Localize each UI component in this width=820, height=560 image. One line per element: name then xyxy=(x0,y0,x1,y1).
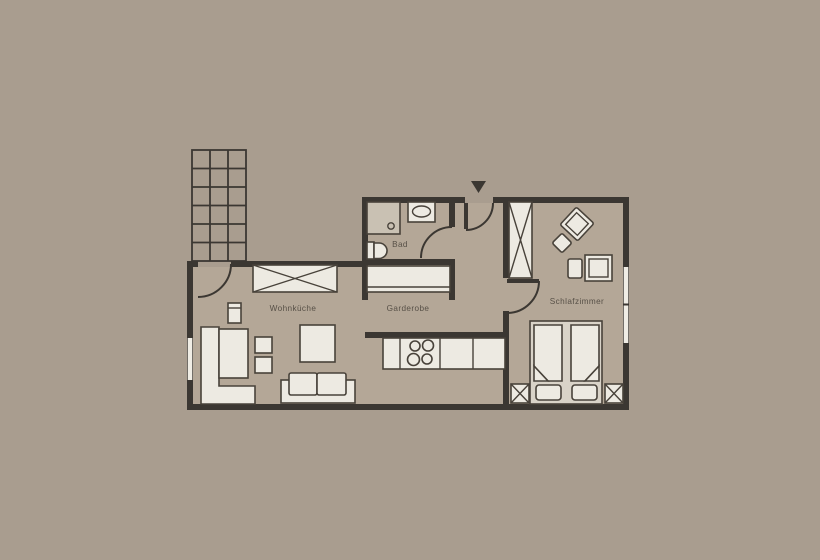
garderobe-closet xyxy=(367,266,450,292)
wall-bath-right-top xyxy=(449,197,455,227)
wall-left xyxy=(187,261,193,410)
shower xyxy=(367,202,400,234)
label-schlafzimmer: Schlafzimmer xyxy=(550,297,604,306)
wall-kitchen xyxy=(365,332,504,338)
wall-top-left-a xyxy=(187,261,198,267)
bedroom-side-table xyxy=(568,259,582,278)
sofa-cushion-right xyxy=(317,373,346,395)
sofa-cushion-left xyxy=(289,373,317,395)
label-garderobe: Garderobe xyxy=(387,304,430,313)
wall-bedroom-left-top xyxy=(503,197,509,278)
floorplan-canvas: Wohnküche Garderobe Bad Schlafzimmer xyxy=(0,0,820,560)
wall-bottom xyxy=(187,404,629,410)
counter-body xyxy=(383,338,505,369)
balcony-grid-rows xyxy=(192,169,246,243)
label-bad: Bad xyxy=(392,240,408,249)
pillow-right xyxy=(572,385,597,400)
wall-bath-bottom xyxy=(362,259,455,265)
window-right-wall-lower xyxy=(624,306,629,344)
stove-burner-4 xyxy=(422,354,432,364)
side-table-2 xyxy=(255,357,272,373)
window-left-wall xyxy=(188,338,193,380)
label-wohnkueche: Wohnküche xyxy=(270,304,317,313)
balcony-grid xyxy=(192,150,246,261)
kitchen-counter xyxy=(383,338,505,369)
toilet-bowl xyxy=(374,243,387,259)
toilet-tank xyxy=(367,242,374,259)
stove-burner-3 xyxy=(408,354,420,366)
floorplan-page: Wohnküche Garderobe Bad Schlafzimmer xyxy=(0,0,820,560)
corner-sofa-seat xyxy=(219,329,248,378)
tv-cabinet xyxy=(228,303,241,323)
pillow-left xyxy=(536,385,561,400)
window-right-wall-upper xyxy=(624,267,629,304)
side-table-1 xyxy=(255,337,272,353)
stove-burner-2 xyxy=(423,340,434,351)
stove-burner-1 xyxy=(410,341,420,351)
entry-arrow-icon xyxy=(471,181,486,193)
closet-body xyxy=(367,266,450,292)
coffee-table xyxy=(300,325,335,362)
